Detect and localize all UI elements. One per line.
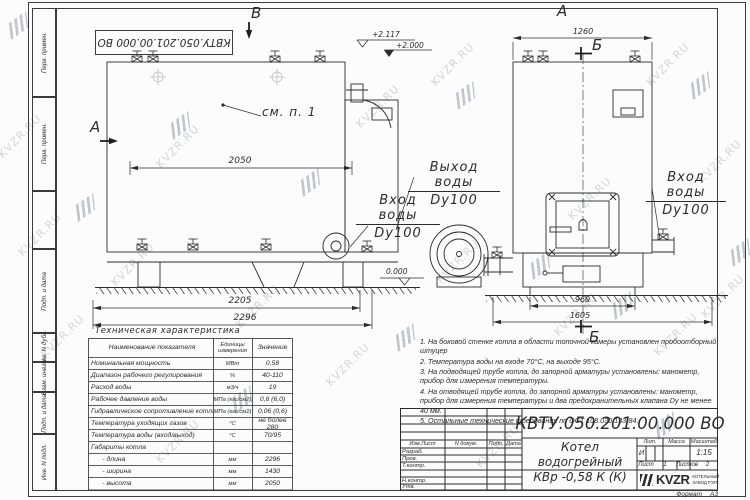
row-value: 0,06 (0,6) <box>252 408 293 415</box>
format-value: А3 <box>710 491 718 498</box>
row-value: 0,6 (6,0) <box>252 396 293 403</box>
left-view <box>95 51 420 288</box>
dimension-lines <box>93 38 712 329</box>
margin-cell-perv-primen: Перв. примен. <box>32 8 56 97</box>
lit-label: Лит. <box>637 439 663 445</box>
dim-1605: 1605 <box>550 311 610 320</box>
table-row: Номинальная мощностьМВт0,58 <box>88 358 293 370</box>
margin-label: Подп. и дата <box>41 394 48 433</box>
section-letter-b-top: Б <box>592 36 602 54</box>
water-outlet-text: Выход воды <box>408 160 500 192</box>
water-inlet-right-dn: Dy100 <box>646 203 726 218</box>
row-units: мм <box>213 457 252 463</box>
row-value: 2050 <box>252 480 293 487</box>
product-line2: КВр -0,58 К (К) <box>523 470 637 485</box>
kvzr-logo-sub2: ЗАВОД РЭП <box>692 480 719 485</box>
row-name: - длина <box>88 456 213 463</box>
water-inlet-text: Вход воды <box>356 193 440 225</box>
sheet-row: Лист 1 Листов 2 <box>637 462 718 468</box>
margin-label: Взам. инв. N <box>41 359 48 395</box>
row-name: Габариты котла <box>88 444 213 451</box>
sheets-value: 2 <box>699 462 716 468</box>
doc-number: КВТУ.050.201.00.000 ВО <box>522 409 718 438</box>
lit-value: И <box>637 448 646 457</box>
section-letter-a-left: А <box>90 118 100 136</box>
margin-cell-inv-dubl: Инв. N дубл. <box>32 333 56 362</box>
col-header-name: Наименование показателя <box>88 344 213 351</box>
note-line: 2. Температура воды на входе 70°С, на вы… <box>420 357 720 366</box>
row-name: Номинальная мощность <box>88 360 213 367</box>
col-header-units: Единицы измерения <box>213 342 252 354</box>
water-inlet-label-right: Вход воды Dy100 <box>646 170 726 218</box>
tech-table: Наименование показателя Единицы измерени… <box>88 338 293 490</box>
dim-960: 960 <box>555 295 610 304</box>
table-row: Диапазон рабочего регулирования%40-110 <box>88 370 293 382</box>
top-stamp-doc-number: КВТУ.050.201.00.000 ВО <box>95 30 233 55</box>
lit-mass-scale-header: Лит. Масса Масштаб <box>637 439 718 445</box>
col-n-dokum: N докум. <box>445 441 487 447</box>
col-podp: Подп. <box>487 441 505 447</box>
row-value: 0,58 <box>252 360 293 367</box>
dimension-arrows <box>93 36 712 327</box>
kvzr-logo: KVZR КОТЕЛЬНЫЙ ЗАВОД РЭП <box>640 471 717 489</box>
see-note-callout: см. п. 1 <box>262 105 316 119</box>
row-name: Гидравлическое сопротивление котла <box>88 408 213 415</box>
table-row: - длинамм2296 <box>88 454 293 466</box>
margin-label: Перв. примен. <box>41 32 48 73</box>
water-inlet-label-left: Вход воды Dy100 <box>356 193 440 241</box>
row-name: Диапазон рабочего регулирования <box>88 372 213 379</box>
col-data: Дата <box>505 441 522 447</box>
role-tkontr: Т.контр. <box>402 463 425 469</box>
level-mark-zero: 0.000 <box>386 267 407 276</box>
dim-2205: 2205 <box>205 296 275 306</box>
table-row: - ширинамм1430 <box>88 466 293 478</box>
tech-table-title: Техническая характеристика <box>95 326 240 336</box>
margin-label: Подп. и дата <box>41 272 48 311</box>
dim-2296: 2296 <box>210 313 280 323</box>
row-units: МВт <box>213 361 252 367</box>
format-row: Формат А3 <box>640 491 718 498</box>
row-units: % <box>213 373 252 379</box>
row-value: 2296 <box>252 456 293 463</box>
row-units: °С <box>213 421 252 427</box>
row-name: Температура воды (вход/выход) <box>88 432 213 439</box>
dim-2050: 2050 <box>205 156 275 166</box>
col-header-value: Значение <box>252 344 293 351</box>
scale-label: Масштаб <box>690 439 718 445</box>
row-name: - высота <box>88 480 213 487</box>
view-letter-a-right: А <box>557 2 567 20</box>
margin-cell-empty <box>32 191 56 249</box>
kvzr-logo-text: KVZR <box>656 472 689 487</box>
row-value: 40-110 <box>252 372 293 379</box>
row-units: МПа (кгс/см2) <box>213 397 252 403</box>
margin-cell-sprav: Перв. примен. <box>32 97 56 191</box>
lifting-lug-marks <box>150 69 285 85</box>
drawing-sheet: KVZR.RU KVZR.RU KVZR.RU KVZR.RU KVZR.RU … <box>0 0 750 500</box>
row-units: мм <box>213 481 252 487</box>
row-units: МПа (кгс/см2) <box>213 409 252 415</box>
margin-cell-podp-data-2: Подп. и дата <box>32 392 56 434</box>
section-letter-v-top: В <box>251 4 261 22</box>
row-units: мм <box>213 469 252 475</box>
row-units: °С <box>213 433 252 439</box>
sheet-label: Лист <box>637 462 655 468</box>
row-name: Рабочее давление воды <box>88 396 213 403</box>
table-row: Температура уходящих газов°Сне более 280 <box>88 418 293 430</box>
table-row: Температура воды (вход/выход)°С70/95 <box>88 430 293 442</box>
row-name: - ширина <box>88 468 213 475</box>
product-name: Котел водогрейный КВр -0,58 К (К) <box>523 440 637 485</box>
row-value: 19 <box>252 384 293 391</box>
section-marks <box>100 22 592 333</box>
row-name: Расход воды <box>88 384 213 391</box>
note-line: 3. На подводящей трубе котла, до запорно… <box>420 367 720 386</box>
mass-label: Масса <box>663 439 690 445</box>
sheet-value: 1 <box>655 462 675 468</box>
margin-cell-vzam-inv: Взам. инв. N <box>32 362 56 392</box>
kvzr-logo-mark-icon <box>640 474 653 486</box>
row-value: 70/95 <box>252 432 293 439</box>
table-row: Габариты котла <box>88 442 293 454</box>
margin-label: Инв. N подл. <box>41 444 48 480</box>
role-nkontr: Н.контр. <box>402 478 427 484</box>
table-row: - высотамм2050 <box>88 478 293 490</box>
margin-cell-inv-podl: Инв. N подл. <box>32 434 56 491</box>
tech-table-header: Наименование показателя Единицы измерени… <box>88 338 293 358</box>
water-inlet-dn: Dy100 <box>356 226 440 241</box>
ground-hatch-left <box>96 288 416 294</box>
role-prov: Пров. <box>402 456 417 462</box>
table-row: Рабочее давление водыМПа (кгс/см2)0,6 (6… <box>88 394 293 406</box>
format-label: Формат <box>676 491 702 498</box>
row-name: Температура уходящих газов <box>88 420 213 427</box>
row-value: 1430 <box>252 468 293 475</box>
table-row: Расход водым3/ч19 <box>88 382 293 394</box>
product-line1: Котел водогрейный <box>523 440 637 470</box>
dim-1260: 1260 <box>553 27 613 36</box>
role-utv: Утв. <box>402 484 415 490</box>
water-inlet-right-text: Вход воды <box>646 170 726 202</box>
sheets-label: Листов <box>675 462 699 468</box>
level-mark-2000: +2.000 <box>396 41 424 50</box>
level-mark-2117: +2.117 <box>372 30 400 39</box>
role-razrab: Разраб. <box>402 449 423 455</box>
note-line: 1. На боковой стенке котла в области топ… <box>420 337 720 356</box>
row-units: м3/ч <box>213 385 252 391</box>
scale-value: 1:15 <box>690 448 718 457</box>
margin-label: Перв. примен. <box>41 123 48 164</box>
row-value: не более 280 <box>252 417 293 431</box>
margin-cell-podp-data: Подп. и дата <box>32 249 56 333</box>
title-block-header-row: Изм.Лист N докум. Подп. Дата <box>400 441 522 447</box>
col-izm-list: Изм.Лист <box>400 441 445 447</box>
